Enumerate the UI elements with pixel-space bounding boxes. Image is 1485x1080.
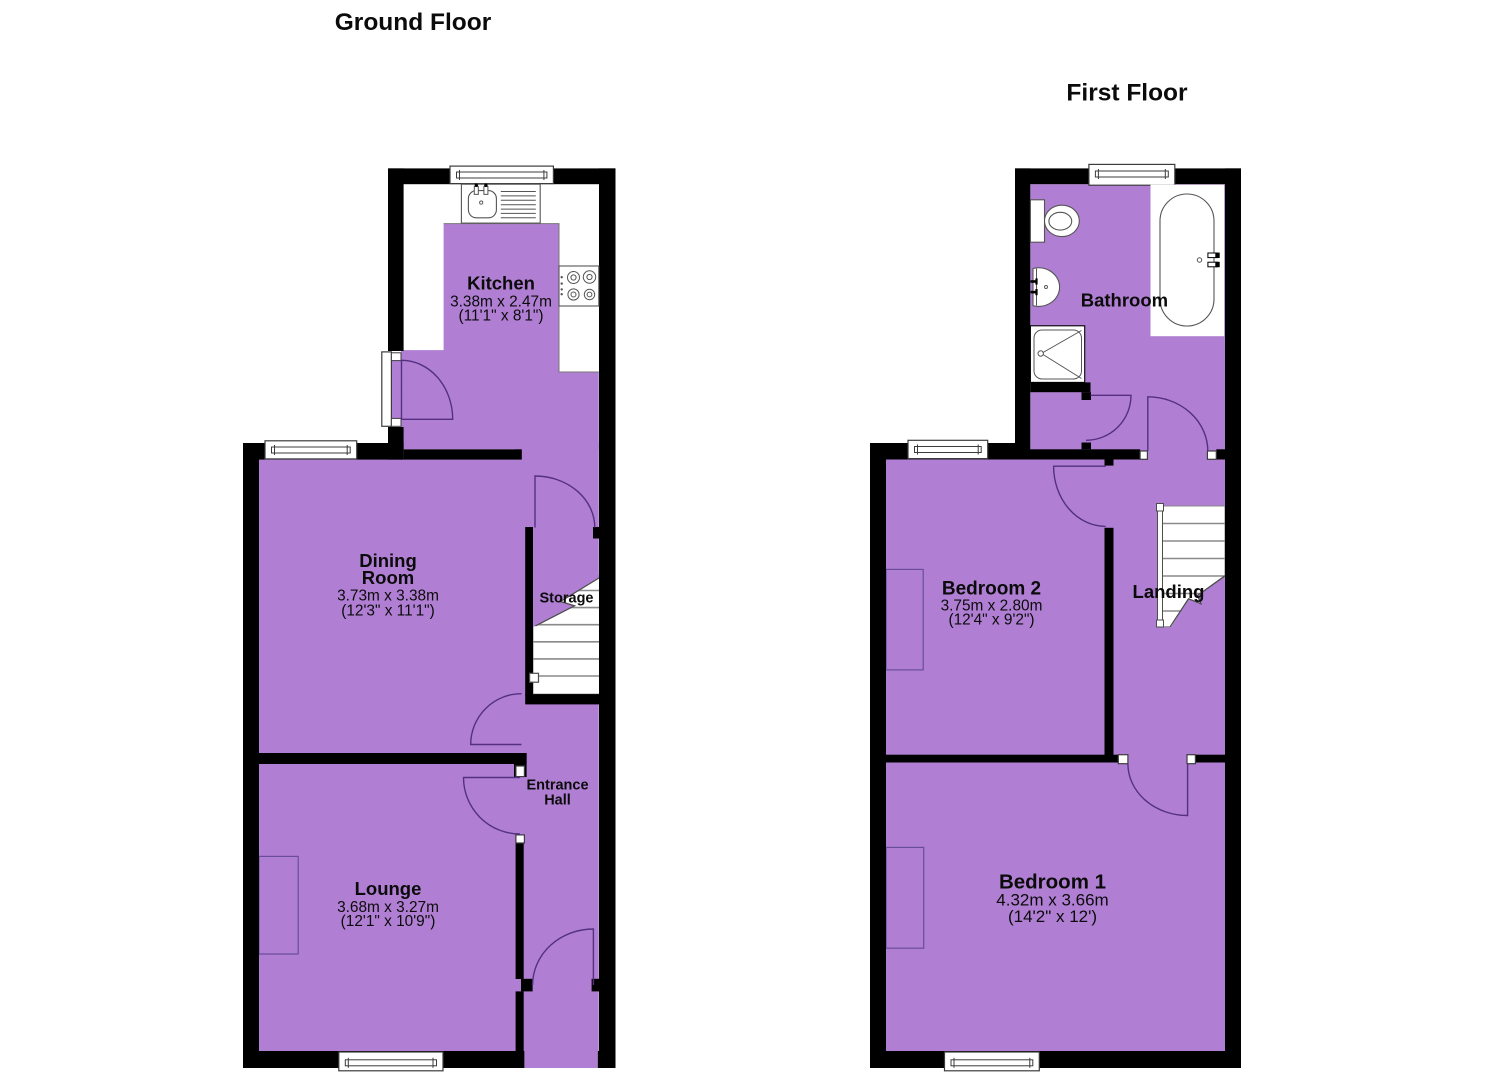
svg-text:(14'2" x 12'): (14'2" x 12'): [1008, 907, 1097, 926]
svg-text:(12'4" x 9'2"): (12'4" x 9'2"): [948, 612, 1034, 629]
svg-text:Bedroom 2: Bedroom 2: [942, 579, 1041, 600]
svg-text:Kitchen: Kitchen: [467, 273, 535, 294]
svg-text:(12'3" x 11'1"): (12'3" x 11'1"): [341, 603, 435, 620]
svg-text:(11'1" x 8'1"): (11'1" x 8'1"): [459, 308, 544, 325]
svg-text:Storage: Storage: [540, 591, 594, 607]
svg-text:Lounge: Lounge: [355, 878, 422, 899]
svg-text:Ground Floor: Ground Floor: [335, 9, 492, 36]
svg-text:Entrance: Entrance: [526, 778, 588, 794]
svg-text:(12'1" x 10'9"): (12'1" x 10'9"): [341, 913, 436, 930]
svg-text:Hall: Hall: [544, 793, 571, 809]
svg-text:Landing: Landing: [1133, 581, 1205, 602]
svg-text:Room: Room: [362, 567, 414, 588]
svg-text:Bathroom: Bathroom: [1081, 290, 1168, 311]
svg-text:First Floor: First Floor: [1066, 80, 1188, 107]
